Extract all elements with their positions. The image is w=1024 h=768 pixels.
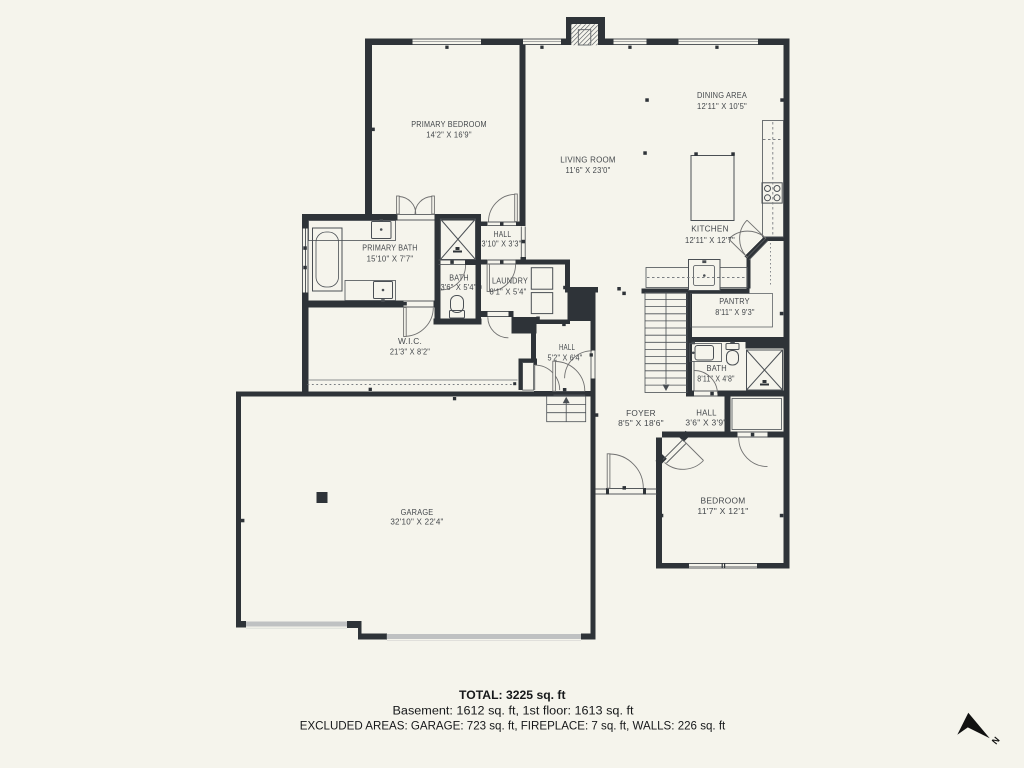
svg-text:3'6" X 5'4": 3'6" X 5'4" [440,282,476,292]
svg-text:11'7" X 12'1": 11'7" X 12'1" [697,506,748,516]
svg-text:Basement: 1612 sq. ft, 1st flo: Basement: 1612 sq. ft, 1st floor: 1613 s… [393,706,635,718]
svg-text:32'10" X 22'4": 32'10" X 22'4" [390,517,443,527]
svg-text:3'6" X 3'9": 3'6" X 3'9" [685,417,726,427]
svg-text:14'2" X 16'9": 14'2" X 16'9" [426,129,472,139]
svg-text:8'1" X 5'4": 8'1" X 5'4" [489,286,526,296]
svg-text:PRIMARY BEDROOM: PRIMARY BEDROOM [411,119,487,129]
svg-text:BEDROOM: BEDROOM [701,495,746,505]
svg-text:LAUNDRY: LAUNDRY [492,275,528,285]
svg-text:5'2" X 6'4": 5'2" X 6'4" [548,352,583,362]
svg-text:8'5" X 18'6": 8'5" X 18'6" [618,418,664,428]
svg-text:LIVING ROOM: LIVING ROOM [560,154,616,164]
svg-text:15'10" X 7'7": 15'10" X 7'7" [367,253,414,263]
svg-text:PANTRY: PANTRY [719,296,750,306]
svg-text:HALL: HALL [494,229,512,239]
svg-text:W.I.C.: W.I.C. [398,336,422,346]
svg-text:8'11" X 4'8": 8'11" X 4'8" [697,373,735,383]
svg-text:TOTAL: 3225 sq. ft: TOTAL: 3225 sq. ft [459,690,566,702]
svg-text:HALL: HALL [559,342,575,352]
svg-text:HALL: HALL [696,407,717,417]
svg-text:EXCLUDED AREAS: GARAGE: 723 sq: EXCLUDED AREAS: GARAGE: 723 sq. ft, FIRE… [300,721,726,733]
svg-text:3'10" X 3'3": 3'10" X 3'3" [482,238,522,248]
svg-text:DINING AREA: DINING AREA [697,90,747,100]
svg-text:GARAGE: GARAGE [401,507,434,517]
svg-text:12'11" X 12'7": 12'11" X 12'7" [685,235,735,245]
svg-text:KITCHEN: KITCHEN [691,223,729,233]
svg-text:8'11" X 9'3": 8'11" X 9'3" [715,307,755,317]
svg-text:FOYER: FOYER [626,408,656,418]
svg-text:BATH: BATH [707,363,727,373]
svg-text:PRIMARY BATH: PRIMARY BATH [362,242,417,252]
svg-text:BATH: BATH [449,272,469,282]
svg-text:12'11" X 10'5": 12'11" X 10'5" [697,101,747,111]
svg-text:21'3" X 8'2": 21'3" X 8'2" [390,346,430,356]
svg-text:11'6" X 23'0": 11'6" X 23'0" [566,165,611,175]
